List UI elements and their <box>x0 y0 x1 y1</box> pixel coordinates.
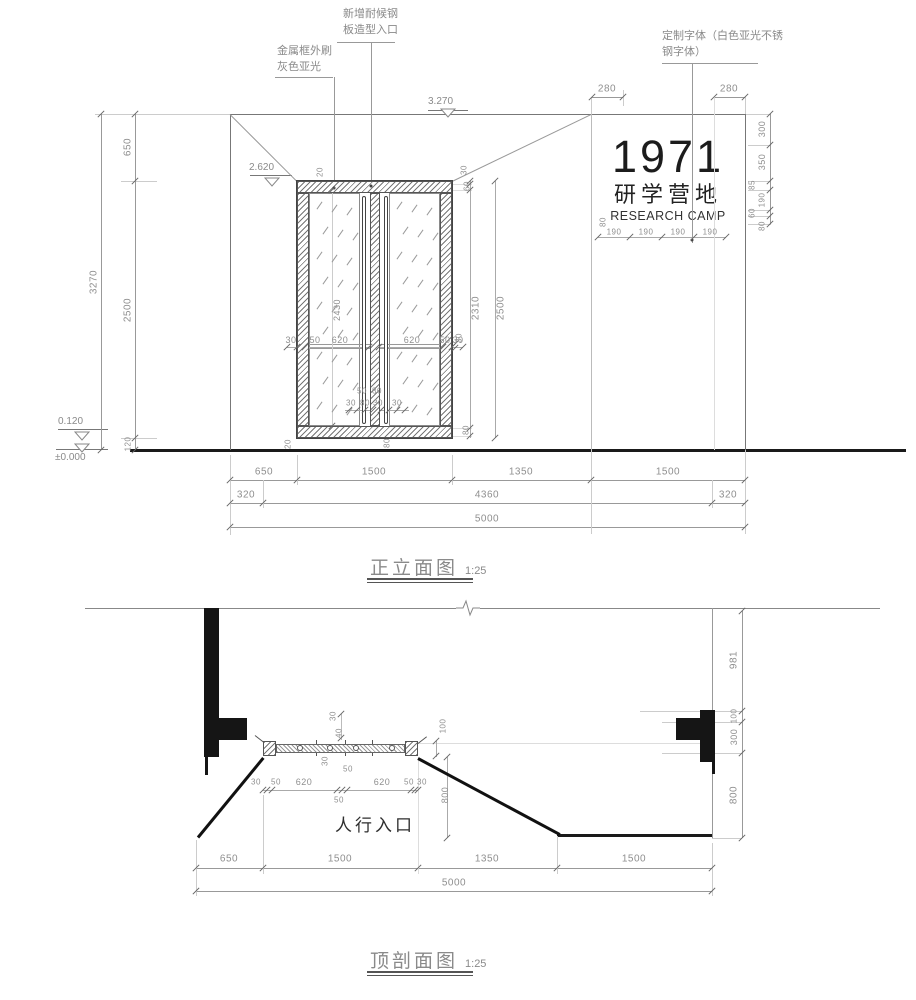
dim-label: 85 <box>748 180 757 190</box>
dim-label: 2430 <box>332 299 342 321</box>
dim-label: 80 <box>758 221 767 231</box>
drawing-line <box>418 743 712 744</box>
drawing-line <box>230 503 745 504</box>
dim-label: 30 <box>346 399 356 408</box>
wall-section <box>205 757 208 775</box>
door-handle-bar <box>384 196 388 424</box>
drawing-line <box>263 795 264 874</box>
dim-label: 280 <box>720 84 738 95</box>
drawing-line <box>418 758 419 874</box>
dim-label: 120 <box>124 437 133 452</box>
elevation-marker-icon <box>264 174 280 192</box>
dim-label: 620 <box>296 777 313 787</box>
dim-label: 20 <box>316 167 325 177</box>
drawing-line <box>557 834 712 837</box>
dim-label: 80 <box>462 425 471 435</box>
wall-section <box>676 718 700 740</box>
dim-label: 650 <box>123 138 134 156</box>
section-title-block: 顶剖面图1:25 <box>370 946 486 973</box>
drawing-line <box>745 450 746 534</box>
dim-label: 80 <box>360 399 370 408</box>
elevation-scale: 1:25 <box>465 565 486 577</box>
dim-tick <box>738 834 745 841</box>
dim-label: 320 <box>237 490 255 501</box>
drawing-line <box>135 114 136 450</box>
dim-label: 1350 <box>475 854 499 865</box>
drawing-line <box>640 711 742 712</box>
dim-label: 981 <box>729 651 740 669</box>
dim-tick <box>722 233 729 240</box>
section-scale: 1:25 <box>465 958 486 970</box>
dim-label: 5000 <box>442 878 466 889</box>
dim-label: 50 <box>334 796 344 805</box>
dim-label: 650 <box>220 854 238 865</box>
wall-section <box>712 762 715 774</box>
annotation-line: 新增耐候钢 <box>343 6 398 22</box>
dim-label: 190 <box>703 228 718 237</box>
annotation-steel-entry: 新增耐候钢 板造型入口 <box>343 6 398 38</box>
dim-label: 320 <box>719 490 737 501</box>
drawing-line <box>367 578 473 580</box>
dim-label: 650 <box>255 467 273 478</box>
dim-label: 30 <box>452 335 463 345</box>
dim-label: 40 <box>335 728 344 738</box>
hinge-symbol <box>327 745 333 751</box>
dim-label: 5000 <box>475 514 499 525</box>
dim-label: 1500 <box>622 854 646 865</box>
dim-label: 30 <box>373 399 383 408</box>
drawing-line <box>334 77 335 189</box>
dim-label: 50 <box>271 778 281 787</box>
drawing-line <box>367 582 473 583</box>
drawing-line <box>714 97 715 450</box>
annotation-line: 金属框外刷 <box>277 43 332 59</box>
annotation-line: 钢字体） <box>662 44 783 60</box>
sign-chinese-name: 研学营地 <box>591 183 745 207</box>
dim-label: 50 <box>404 778 414 787</box>
drawing-line <box>745 114 746 450</box>
drawing-line <box>196 891 712 892</box>
hatched-member <box>405 741 418 756</box>
annotation-custom-font: 定制字体（白色亚光不锈 钢字体） <box>662 28 783 60</box>
hinge-symbol <box>389 745 395 751</box>
dim-tick <box>766 220 773 227</box>
dim-label: 100 <box>439 719 448 734</box>
drawing-line <box>623 90 624 106</box>
dim-label: 1500 <box>362 467 386 478</box>
drawing-line <box>592 97 623 98</box>
dim-label: 800 <box>729 786 740 804</box>
drawing-line <box>95 114 230 115</box>
drawing-line <box>230 480 745 481</box>
annotation-metal-frame: 金属框外刷 灰色亚光 <box>277 43 332 75</box>
level-label-door-top: 2.620 <box>249 162 274 173</box>
dim-label: 30 <box>321 756 330 766</box>
section-title: 顶剖面图 <box>370 951 458 972</box>
dim-label: 190 <box>671 228 686 237</box>
dim-label: 620 <box>332 335 349 345</box>
elevation-title: 正立面图 <box>370 558 458 579</box>
drawing-line <box>662 63 758 64</box>
dim-label: 80 <box>372 387 382 396</box>
drawing-line <box>714 97 745 98</box>
drawing-line <box>367 971 473 973</box>
break-symbol-icon <box>456 599 480 622</box>
drawing-line <box>263 480 264 508</box>
annotation-line: 定制字体（白色亚光不锈 <box>662 28 783 44</box>
wall-section <box>219 718 247 740</box>
drawing-line <box>337 42 395 43</box>
drawing-line <box>452 114 591 182</box>
dim-label: 50 <box>309 335 320 345</box>
wall-section <box>204 608 219 757</box>
drawing-line <box>121 181 157 182</box>
drawing-line <box>130 449 906 452</box>
elevation-title-block: 正立面图1:25 <box>370 553 486 580</box>
dim-label: 190 <box>758 193 767 208</box>
dim-label: 280 <box>598 84 616 95</box>
dim-label: 2310 <box>471 296 482 320</box>
dim-label: 50 <box>439 335 450 345</box>
door-leaf-plan <box>276 744 405 753</box>
dim-label: 190 <box>639 228 654 237</box>
drawing-line <box>712 838 742 839</box>
drawing-line <box>371 42 372 185</box>
architectural-drawing: 新增耐候钢 板造型入口 金属框外刷 灰色亚光 定制字体（白色亚光不锈 钢字体） … <box>0 0 916 1000</box>
sign-year: 1971 <box>591 133 745 180</box>
annotation-line: 板造型入口 <box>343 22 398 38</box>
drawing-line <box>230 527 745 528</box>
drawing-line <box>275 77 333 78</box>
drawing-line <box>745 97 746 114</box>
dim-label: 2500 <box>496 296 507 320</box>
drawing-line <box>591 450 592 534</box>
dim-label: 50 <box>343 765 353 774</box>
drawing-line <box>230 114 231 450</box>
dim-tick <box>443 834 450 841</box>
dim-label: 100 <box>730 709 739 724</box>
dim-label: 80 <box>599 217 608 227</box>
dim-label: 30 <box>460 165 469 175</box>
dim-label: 300 <box>729 729 739 746</box>
drawing-line <box>742 611 743 838</box>
dim-label: 620 <box>404 335 421 345</box>
sign-english-name: RESEARCH CAMP <box>591 209 745 223</box>
hatched-member <box>263 741 276 756</box>
dim-label: 30 <box>392 399 402 408</box>
elevation-marker-icon <box>74 440 90 458</box>
dim-label: 60 <box>748 208 757 218</box>
dim-label: 30 <box>417 778 427 787</box>
level-label-sill: 0.120 <box>58 416 83 427</box>
dim-label: 30 <box>285 335 296 345</box>
hinge-symbol <box>353 745 359 751</box>
drawing-line <box>591 97 592 114</box>
dim-label: 3270 <box>89 270 100 294</box>
dim-label: 50 <box>357 387 367 396</box>
drawing-line <box>230 455 231 535</box>
dim-label: 20 <box>284 439 293 449</box>
dim-label: 190 <box>607 228 622 237</box>
dim-tick <box>432 752 439 759</box>
drawing-line <box>591 114 592 450</box>
dim-label: 2500 <box>123 298 134 322</box>
leader-dot <box>370 185 373 188</box>
drawing-line <box>692 63 693 243</box>
pedestrian-entrance-label: 人行入口 <box>335 811 415 836</box>
wall-section <box>700 710 715 762</box>
dim-label: 4360 <box>475 490 499 501</box>
camp-sign: 1971 研学营地 RESEARCH CAMP <box>591 133 745 223</box>
dim-label: 300 <box>757 121 767 138</box>
dim-label: 60 <box>463 181 472 191</box>
drawing-line <box>230 114 745 115</box>
dim-label: 80 <box>383 438 392 448</box>
drawing-line <box>196 868 712 869</box>
drawing-line <box>101 114 102 450</box>
drawing-line <box>417 757 560 836</box>
dim-label: 1350 <box>509 467 533 478</box>
dim-label: 620 <box>374 777 391 787</box>
hinge-symbol <box>297 745 303 751</box>
dim-label: 1500 <box>328 854 352 865</box>
dim-label: 30 <box>251 778 261 787</box>
drawing-line <box>712 480 713 508</box>
dim-tick <box>97 446 104 453</box>
dim-label: 800 <box>440 787 450 804</box>
annotation-line: 灰色亚光 <box>277 59 332 75</box>
drawing-line <box>367 975 473 976</box>
elevation-marker-icon <box>440 105 456 123</box>
dim-label: 1500 <box>656 467 680 478</box>
dim-tick <box>491 434 498 441</box>
dim-label: 30 <box>329 711 338 721</box>
dim-label: 350 <box>757 154 767 171</box>
